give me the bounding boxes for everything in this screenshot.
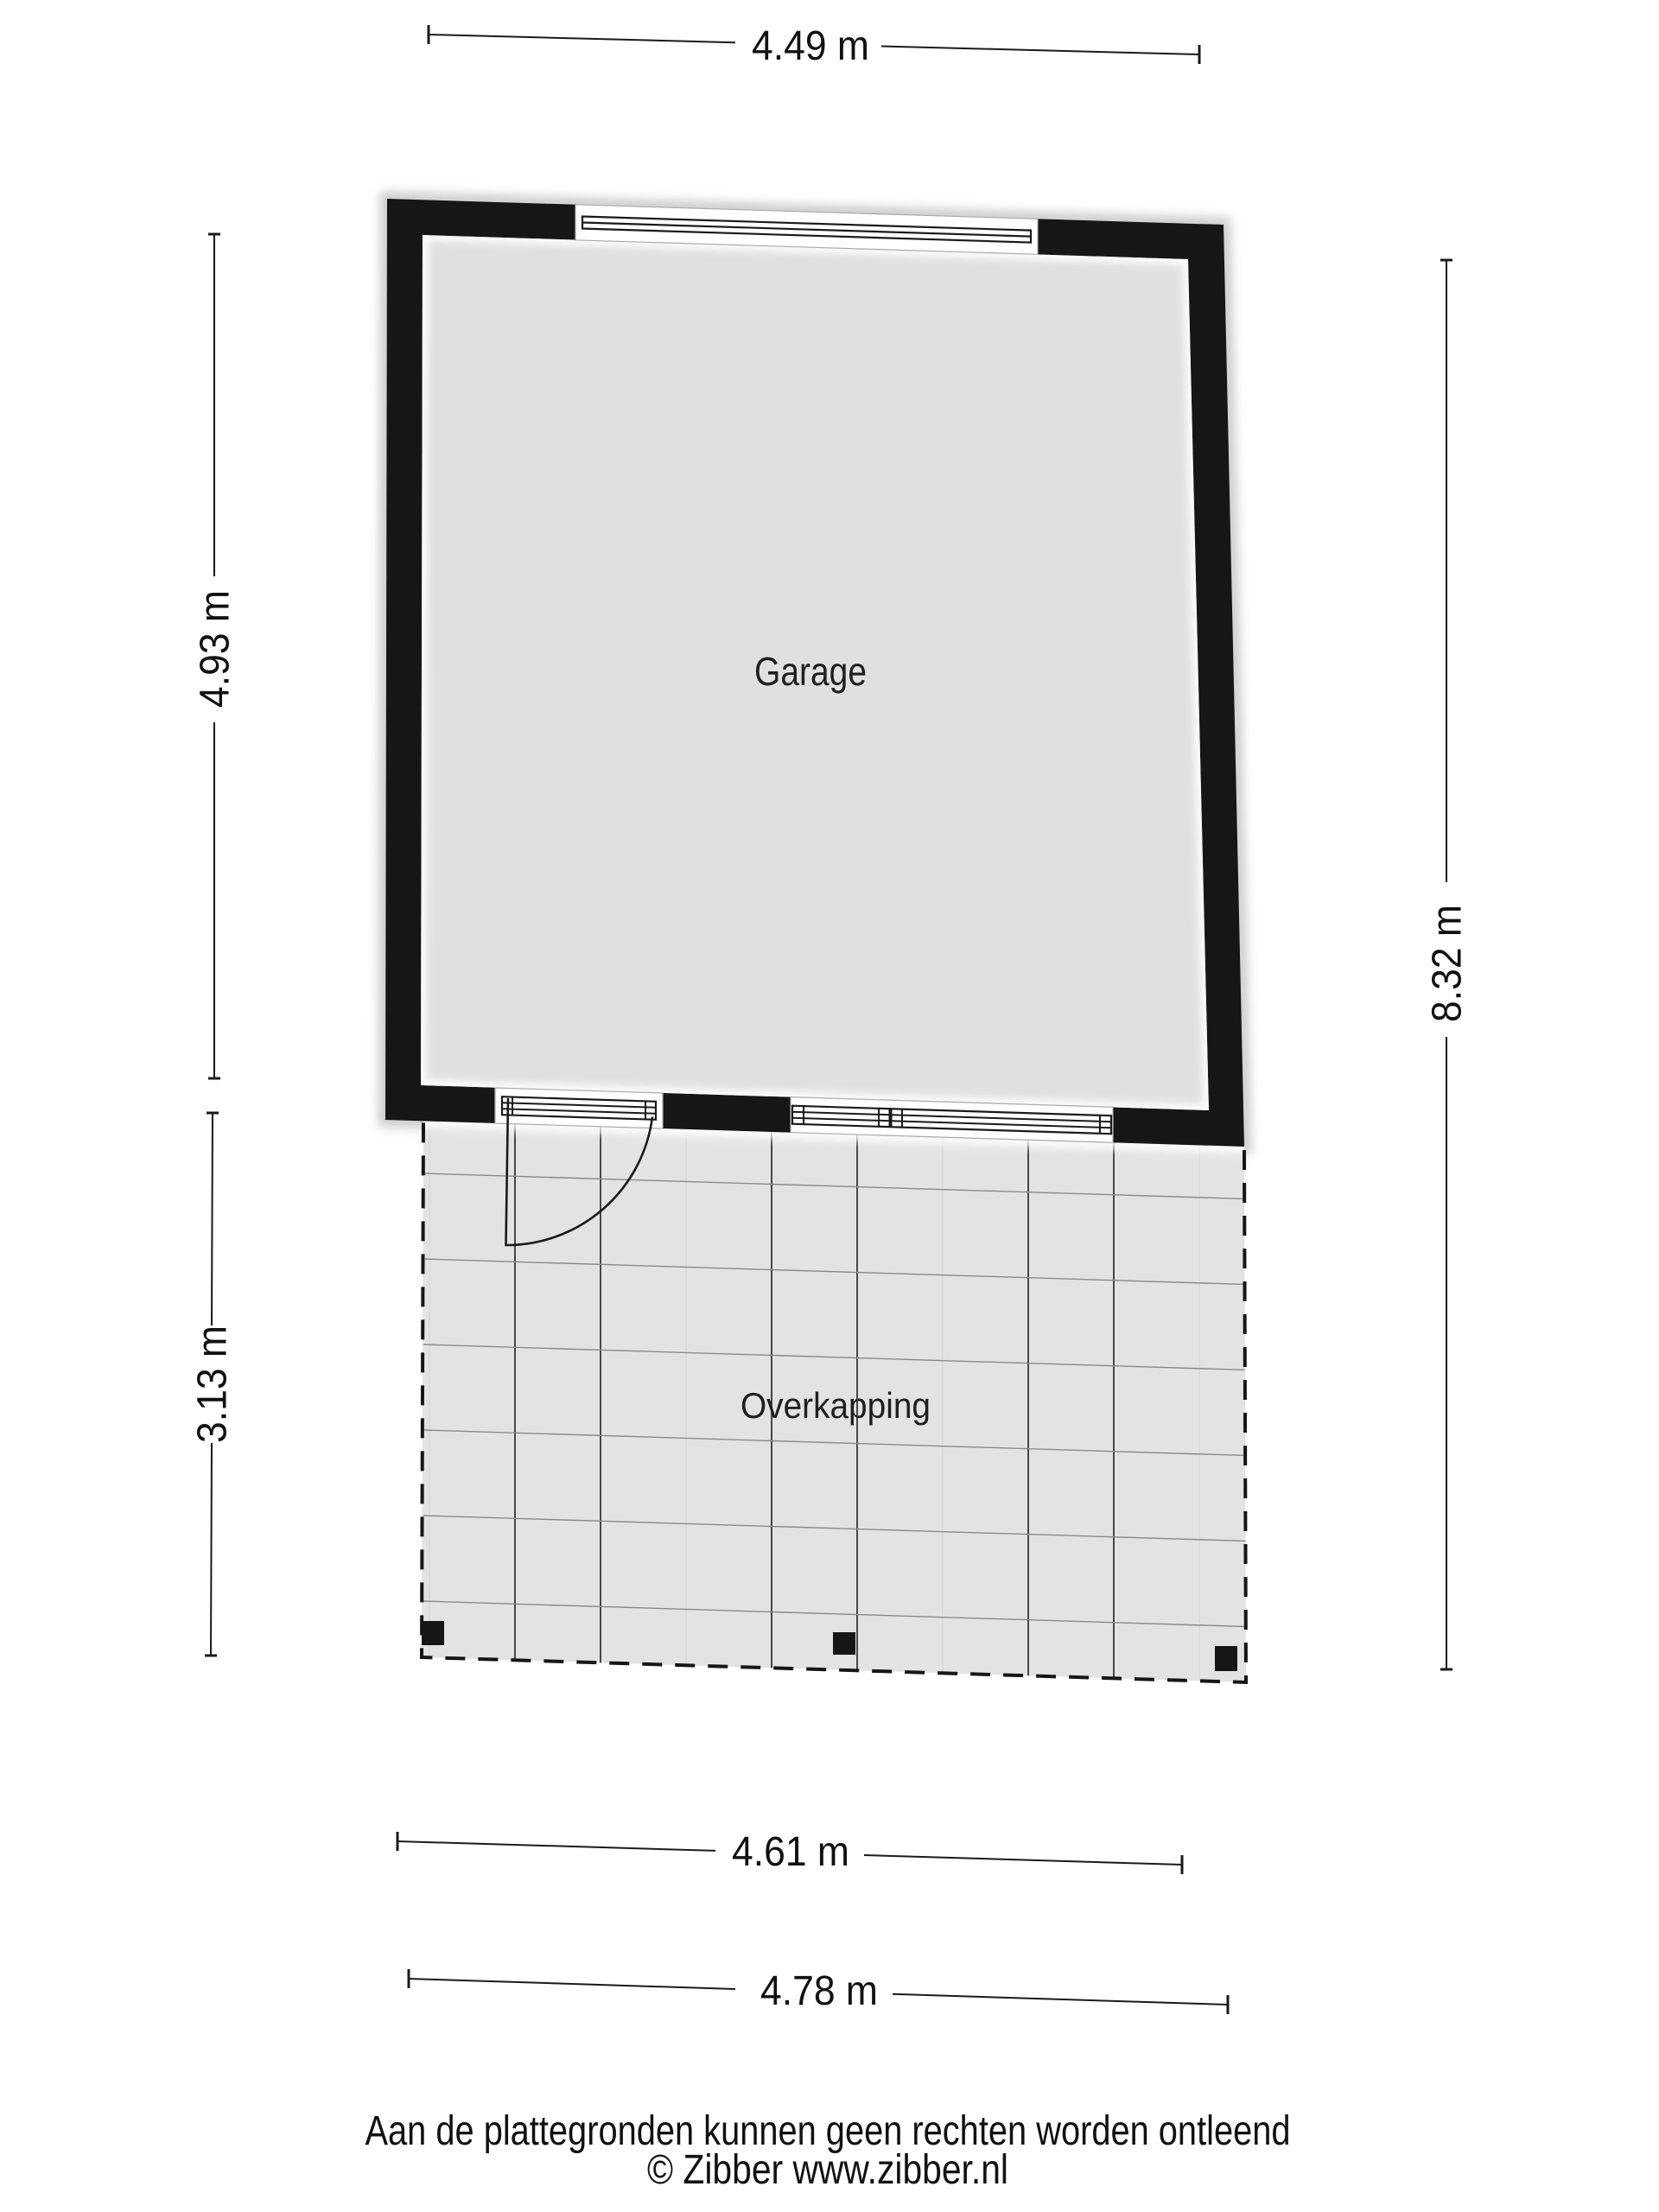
svg-text:3.13 m: 3.13 m — [190, 1325, 236, 1443]
svg-text:© Zibber www.zibber.nl: © Zibber www.zibber.nl — [647, 2147, 1008, 2193]
svg-text:4.61 m: 4.61 m — [732, 1829, 849, 1875]
svg-text:Garage: Garage — [754, 649, 867, 694]
svg-text:8.32 m: 8.32 m — [1425, 905, 1471, 1022]
svg-text:4.49 m: 4.49 m — [752, 23, 869, 69]
svg-text:4.78 m: 4.78 m — [760, 1968, 878, 2014]
svg-text:Overkapping: Overkapping — [741, 1385, 931, 1426]
svg-text:4.93 m: 4.93 m — [193, 590, 238, 708]
